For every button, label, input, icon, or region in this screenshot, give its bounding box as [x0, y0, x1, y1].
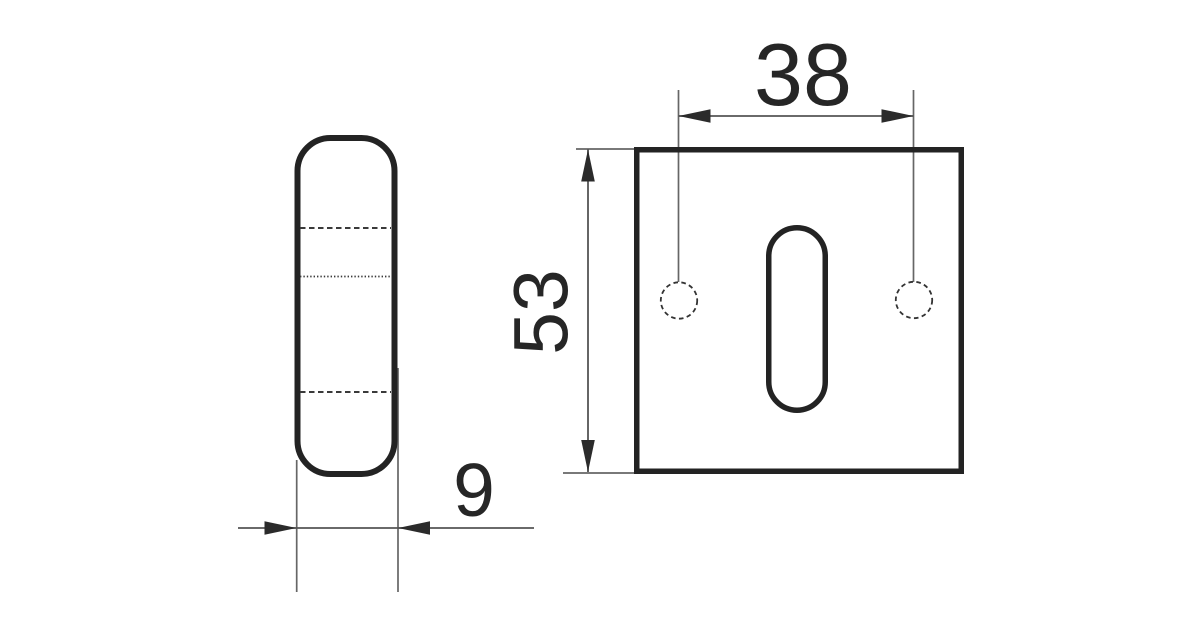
svg-text:9: 9 — [453, 448, 495, 532]
svg-text:53: 53 — [499, 269, 585, 355]
svg-text:38: 38 — [754, 25, 852, 124]
